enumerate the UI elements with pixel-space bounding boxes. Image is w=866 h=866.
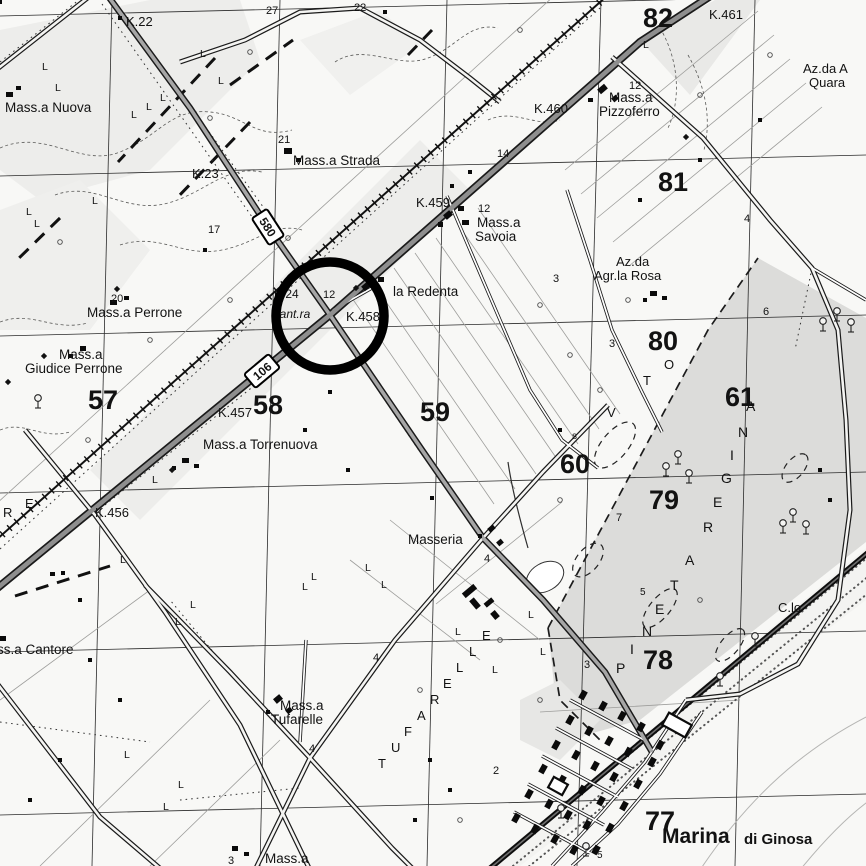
label-pineta-regina: N — [738, 424, 748, 440]
map-label: Pizzoferro — [599, 104, 660, 119]
grid-number-82: 82 — [643, 3, 673, 33]
map-label: 4 — [309, 743, 315, 755]
map-label: R — [3, 505, 12, 520]
building — [284, 148, 292, 154]
symbol-l-mark: L — [152, 474, 158, 486]
building — [182, 458, 189, 463]
pine-tree-icon — [820, 318, 827, 325]
label-tufarelle-contrada: U — [391, 740, 400, 755]
map-label: 5 — [640, 587, 646, 598]
label-pineta-regina: R — [703, 519, 713, 535]
label-tufarelle-contrada: A — [417, 708, 426, 723]
label-pineta-regina: I — [730, 447, 734, 463]
label-azienda-rosa: Az.da — [616, 254, 650, 269]
grid-number-60: 60 — [560, 449, 590, 479]
symbol-l-mark: L — [120, 554, 126, 566]
symbol-l-mark: L — [381, 579, 387, 591]
building — [378, 277, 384, 282]
label-tufarelle-contrada: E — [443, 676, 452, 691]
km-marker-k461: K.461 — [709, 7, 743, 22]
label-casello: C.lo — [778, 600, 801, 615]
symbol-l-mark: L — [34, 218, 40, 230]
symbol-l-mark: L — [302, 581, 308, 593]
label-marina-di-ginosa: Marina — [662, 825, 730, 848]
farm-building-dot — [383, 10, 387, 14]
pine-tree-icon — [35, 395, 42, 402]
pine-tree-icon — [558, 805, 565, 812]
label-massa-savoia: Mass.a — [477, 215, 521, 230]
farm-building-dot — [346, 468, 350, 472]
map-label: Tufarelle — [271, 712, 323, 727]
building — [588, 98, 593, 102]
symbol-l-mark: L — [643, 39, 649, 51]
km-marker-k456: K.456 — [95, 505, 129, 520]
building — [244, 852, 249, 856]
label-azienda-quaranta: Az.da A — [803, 61, 848, 76]
pine-tree-icon — [663, 463, 670, 470]
farm-building-dot — [818, 468, 822, 472]
symbol-l-mark: L — [131, 109, 137, 121]
symbol-l-mark: L — [42, 61, 48, 73]
symbol-l-mark: L — [455, 626, 461, 638]
symbol-l-mark: L — [163, 801, 169, 813]
label-pineta-regina: T — [670, 577, 679, 593]
symbol-l-mark: L — [26, 206, 32, 218]
building — [124, 296, 129, 300]
farm-building-dot — [758, 118, 762, 122]
label-massa-pizzoferro: Mass.a — [609, 90, 653, 105]
building — [50, 572, 55, 576]
label-pineta-regina: E — [655, 601, 664, 617]
label-tufarelle-contrada: R — [430, 692, 439, 707]
building — [16, 86, 21, 90]
map-label: 22 — [354, 2, 366, 14]
building — [232, 846, 238, 851]
label-pineta-regina: P — [616, 660, 625, 676]
map-label: 3 — [584, 659, 590, 671]
label-massa-giudice-perrone: Mass.a — [59, 347, 103, 362]
km-marker-k458: K.458 — [346, 309, 380, 324]
map-label: 5 — [597, 850, 603, 861]
building — [458, 206, 464, 211]
label-pineta-regina: I — [630, 641, 634, 657]
map-label: s — [572, 431, 577, 442]
grid-number-59: 59 — [420, 397, 450, 427]
label-massa-tufarelle: Mass.a — [280, 698, 324, 713]
farm-building-dot — [88, 658, 92, 662]
map-label: 14 — [497, 148, 509, 160]
grid-number-58: 58 — [253, 390, 283, 420]
map-label: 2 — [493, 765, 499, 777]
label-pineta-regina: N — [642, 623, 652, 639]
farm-building-dot — [203, 248, 207, 252]
symbol-l-mark: L — [175, 616, 181, 628]
farm-building-dot — [0, 0, 2, 4]
label-tufarelle-contrada: E — [482, 628, 491, 643]
map-label: di Ginosa — [744, 831, 813, 848]
pine-tree-icon — [583, 843, 590, 850]
farm-building-dot — [413, 818, 417, 822]
grid-number-81: 81 — [658, 167, 688, 197]
building — [194, 464, 199, 468]
label-massa-nuova: Mass.a Nuova — [5, 100, 92, 115]
farm-building-dot — [328, 390, 332, 394]
label-pineta-regina: A — [685, 552, 695, 568]
pine-tree-icon — [790, 509, 797, 516]
building — [438, 222, 443, 227]
map-label: 20 — [111, 293, 123, 305]
symbol-l-mark: L — [55, 82, 61, 94]
label-massa-strada: Mass.a Strada — [293, 153, 381, 168]
farm-building-dot — [698, 158, 702, 162]
farm-building-dot — [303, 428, 307, 432]
label-tufarelle-contrada: T — [378, 756, 386, 771]
building — [662, 296, 667, 300]
building — [266, 710, 270, 714]
farm-building-dot — [118, 698, 122, 702]
farm-building-dot — [448, 788, 452, 792]
farm-building-dot — [468, 170, 472, 174]
label-massa-torrenuova: Mass.a Torrenuova — [203, 437, 318, 452]
pine-tree-icon — [686, 470, 693, 477]
symbol-l-mark: L — [190, 599, 196, 611]
farm-building-dot — [28, 798, 32, 802]
farm-building-dot — [450, 184, 454, 188]
building — [478, 534, 482, 538]
map-label: 27 — [266, 5, 278, 17]
symbol-l-mark: L — [492, 664, 498, 676]
km-marker-k23: K.23 — [192, 166, 219, 181]
map-label: Giudice Perrone — [25, 361, 123, 376]
farm-building-dot — [58, 758, 62, 762]
map-label: 4 — [373, 652, 379, 664]
pine-tree-icon — [803, 521, 810, 528]
map-label: 17 — [208, 224, 220, 236]
building — [650, 291, 657, 296]
km-marker-k459: K.459 — [416, 195, 450, 210]
map-label: 7 — [616, 512, 622, 524]
map-label: 3 — [609, 338, 615, 350]
symbol-l-mark: L — [124, 749, 130, 761]
pine-tree-icon — [752, 633, 759, 640]
topographic-map-canvas[interactable]: LLLLLLLLLLLLLLLLLLLLLLLLLL K.222722Mass.… — [0, 0, 866, 866]
map-viewport[interactable]: LLLLLLLLLLLLLLLLLLLLLLLLLL K.222722Mass.… — [0, 0, 866, 866]
farm-building-dot — [558, 428, 562, 432]
label-vto: V — [607, 405, 616, 420]
label-pineta-regina: A — [746, 398, 756, 414]
label-masseria: Masseria — [408, 532, 463, 547]
farm-building-dot — [638, 198, 642, 202]
map-label: 6 — [763, 306, 769, 318]
grid-number-57: 57 — [88, 385, 118, 415]
map-label: 3 — [553, 273, 559, 285]
symbol-l-mark: L — [160, 92, 166, 104]
label-tufarelle-contrada: F — [404, 724, 412, 739]
map-label: Quara — [809, 75, 846, 90]
label-pineta-regina: E — [713, 494, 722, 510]
km-marker-k457: K.457 — [218, 405, 252, 420]
map-label: 4 — [744, 213, 750, 225]
building — [78, 598, 82, 602]
symbol-l-mark: L — [92, 195, 98, 207]
label-massa-cantore: ss.a Cantore — [0, 642, 74, 657]
symbol-l-mark: L — [528, 609, 534, 621]
symbol-l-mark: L — [365, 562, 371, 574]
map-label: 12 — [323, 289, 335, 301]
grid-number-80: 80 — [648, 326, 678, 356]
map-label: E — [25, 496, 34, 511]
farm-building-dot — [828, 498, 832, 502]
map-label: Savoia — [475, 229, 517, 244]
km-marker-k460: K.460 — [534, 101, 568, 116]
building — [0, 636, 6, 641]
map-label: 12 — [478, 203, 490, 215]
pine-tree-icon — [834, 308, 841, 315]
symbol-l-mark: L — [178, 779, 184, 791]
label-vto: T — [643, 373, 651, 388]
grid-number-78: 78 — [643, 645, 673, 675]
symbol-l-mark: L — [200, 48, 206, 60]
map-label: 4 — [484, 553, 490, 565]
symbol-l-mark: L — [540, 646, 546, 658]
building — [643, 298, 647, 302]
label-vto: O — [664, 357, 674, 372]
pine-tree-icon — [675, 451, 682, 458]
pine-tree-icon — [717, 673, 724, 680]
km-marker-k22: K.22 — [126, 14, 153, 29]
farm-building-dot — [61, 571, 65, 575]
label-la-redenta: la Redenta — [393, 284, 459, 299]
label-pineta-regina: G — [721, 470, 732, 486]
farm-building-dot — [118, 16, 122, 20]
map-label: 3 — [228, 855, 234, 866]
farm-building-dot — [428, 758, 432, 762]
pine-tree-icon — [780, 520, 787, 527]
building — [6, 92, 13, 97]
label-tufarelle-contrada: L — [456, 660, 463, 675]
symbol-l-mark: L — [311, 571, 317, 583]
map-label: Mass.a — [265, 851, 309, 866]
map-label: 21 — [278, 134, 290, 146]
grid-number-79: 79 — [649, 485, 679, 515]
label-tufarelle-contrada: L — [469, 644, 476, 659]
symbol-l-mark: L — [146, 101, 152, 113]
pine-tree-icon — [848, 319, 855, 326]
symbol-l-mark: L — [218, 75, 224, 87]
building — [462, 220, 469, 225]
map-label: Agr.la Rosa — [594, 268, 662, 283]
label-massa-perrone: Mass.a Perrone — [87, 305, 182, 320]
farm-building-dot — [430, 496, 434, 500]
